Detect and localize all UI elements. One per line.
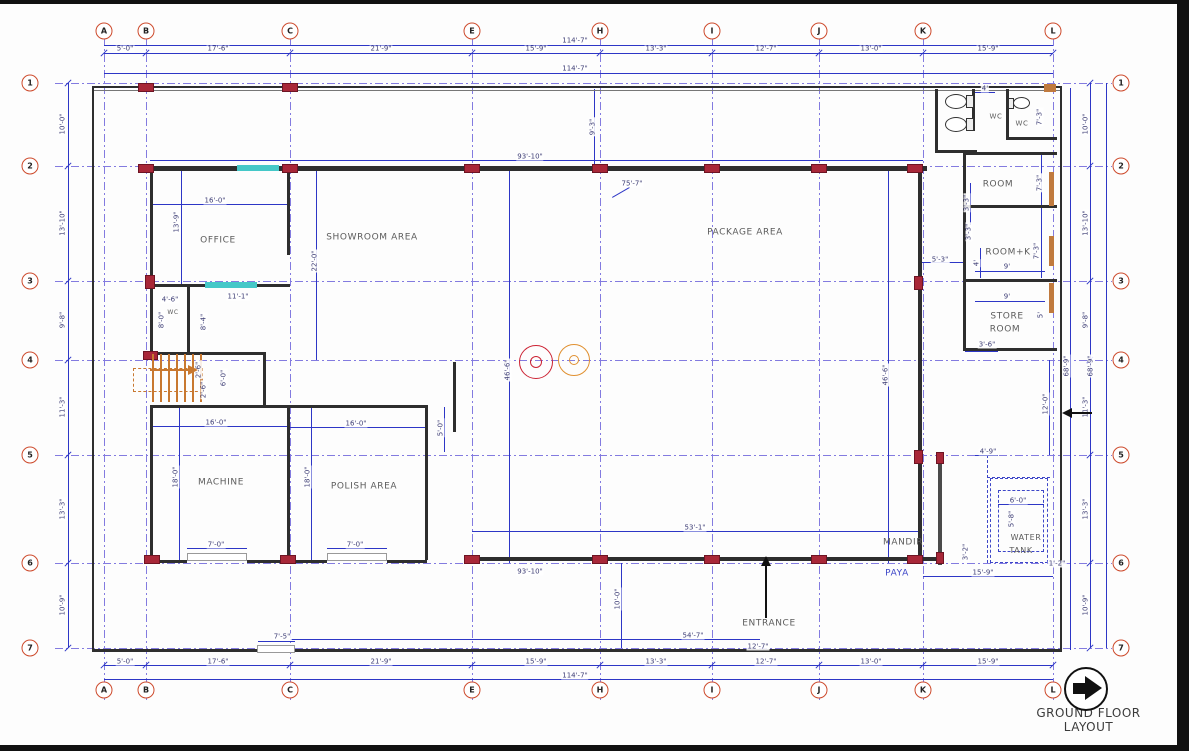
column-marker [704, 164, 720, 173]
dim-label: 7'-0" [207, 542, 226, 549]
dim-label: 10'-0" [615, 587, 622, 610]
toilet-tank-icon [966, 95, 974, 108]
dim-label: 12'-7" [746, 644, 769, 651]
door-opening [327, 553, 387, 561]
dim-label: 11'-1" [226, 294, 249, 301]
dimension-line [1106, 83, 1107, 648]
grid-bubble-3-left: 3 [22, 273, 39, 290]
col-dim-bottom: 17'-6" [206, 659, 229, 666]
dim-label: 6'-0" [221, 369, 228, 388]
west-arrow-line [1070, 412, 1092, 414]
column-marker [280, 555, 296, 564]
window-symbol [205, 282, 257, 288]
dim-label: 7'-0" [346, 542, 365, 549]
column-marker [464, 555, 480, 564]
column-marker [144, 555, 160, 564]
wall [387, 560, 427, 563]
wall [287, 171, 290, 255]
dimension-line [104, 45, 1053, 46]
row-dim-left: 9'-8" [60, 311, 67, 330]
toilet-icon [1013, 97, 1030, 109]
wall [150, 171, 153, 352]
column-marker [138, 83, 154, 92]
grid-bubble-C-top: C [282, 23, 299, 40]
machine-circle-inner [530, 356, 542, 368]
column-marker [914, 450, 923, 464]
stairs-tread [160, 354, 162, 402]
column-marker [914, 276, 923, 290]
dimension-line [181, 171, 182, 284]
column-marker [811, 164, 827, 173]
grid-bubble-4-right: 4 [1113, 352, 1130, 369]
grid-bubble-6-left: 6 [22, 555, 39, 572]
dimension-line [975, 271, 1045, 272]
column-marker [143, 351, 158, 360]
wall [150, 407, 153, 560]
column-marker [907, 555, 923, 564]
grid-bubble-2-right: 2 [1113, 158, 1130, 175]
wall [472, 557, 922, 561]
door-symbol [1049, 236, 1054, 266]
room-label-water-tank-line1: WATER [1011, 534, 1042, 542]
stairs-tread [176, 354, 178, 402]
dimension-line [1041, 208, 1042, 278]
room-label-mandir: MANDIR [883, 539, 923, 548]
dim-label: 15'-9" [971, 570, 994, 577]
door-symbol [1049, 283, 1054, 313]
dim-label: 114'-7" [561, 38, 588, 45]
dim-label: 7'-5" [273, 634, 292, 641]
stairs-tread [152, 354, 154, 402]
grid-bubble-1-left: 1 [22, 75, 39, 92]
row-dim-right: 13'-3" [1083, 497, 1090, 520]
dim-label: 18'-0" [305, 465, 312, 488]
column-marker [936, 552, 944, 564]
row-dim-right: 10'-0" [1083, 112, 1090, 135]
dim-label: 93'-10" [516, 569, 543, 576]
dim-label: 9' [1003, 264, 1011, 271]
dim-label: 68'-9" [1088, 354, 1095, 377]
room-label-office: OFFICE [200, 237, 236, 246]
col-dim-top: 17'-6" [206, 46, 229, 53]
dimension-line [104, 53, 1053, 54]
col-dim-bottom: 12'-7" [754, 659, 777, 666]
column-marker [907, 164, 923, 173]
toilet-icon [945, 94, 967, 109]
grid-bubble-A-top: A [96, 23, 113, 40]
dim-label: 9'-3" [590, 118, 597, 137]
dim-label: 3'-2" [963, 543, 970, 562]
wall [963, 152, 966, 351]
dim-label: 46'-6" [883, 363, 890, 386]
row-dim-left: 10'-9" [60, 593, 67, 616]
north-arrow-bar [1073, 683, 1087, 694]
grid-bubble-A-bottom: A [96, 682, 113, 699]
row-dim-left: 13'-10" [60, 209, 67, 236]
grid-bubble-I-top: I [704, 23, 721, 40]
grid-bubble-1-right: 1 [1113, 75, 1130, 92]
dim-label: 75'-7" [620, 181, 643, 188]
dim-label: 12'-0" [1043, 392, 1050, 415]
dim-label: 3'-6" [978, 342, 997, 349]
room-label-room: ROOM [983, 181, 1014, 190]
dim-label: 2'-6" [201, 381, 208, 400]
col-dim-top: 15'-9" [976, 46, 999, 53]
col-dim-bottom: 5'-0" [116, 659, 135, 666]
grid-bubble-6-right: 6 [1113, 555, 1130, 572]
grid-bubble-2-left: 2 [22, 158, 39, 175]
room-label-polish-area: POLISH AREA [331, 483, 397, 492]
col-dim-top: 12'-7" [754, 46, 777, 53]
dim-label: 9' [1003, 294, 1011, 301]
dim-label: 114'-7" [561, 673, 588, 680]
dim-label: 5'-8" [1009, 510, 1016, 529]
room-label-wc-right-1: WC [989, 114, 1002, 121]
entrance-arrow [761, 556, 771, 566]
column-marker [464, 164, 480, 173]
grid-line-col-H [600, 38, 601, 700]
room-label-store-room-line2: ROOM [990, 326, 1021, 335]
col-dim-top: 21'-9" [369, 46, 392, 53]
toilet-tank-icon [1008, 98, 1014, 109]
machine-circle-inner [569, 355, 579, 365]
dim-label: 22'-0" [312, 249, 319, 272]
dim-label: 16'-0" [204, 420, 227, 427]
wall [963, 205, 1057, 208]
wall [918, 171, 922, 561]
grid-bubble-7-left: 7 [22, 640, 39, 657]
wall [92, 649, 259, 652]
grid-bubble-I-bottom: I [704, 682, 721, 699]
screen-edge-top [0, 0, 1189, 4]
col-dim-bottom: 15'-9" [976, 659, 999, 666]
col-dim-bottom: 21'-9" [369, 659, 392, 666]
wall [92, 90, 1062, 91]
wall [92, 86, 1062, 88]
door-opening [257, 645, 295, 653]
wall [935, 89, 938, 153]
grid-bubble-E-top: E [464, 23, 481, 40]
column-marker [592, 555, 608, 564]
dim-label: 5' [1038, 311, 1045, 319]
grid-line-col-K [923, 38, 924, 700]
dim-label: 46'-6" [505, 358, 512, 381]
grid-bubble-L-top: L [1045, 23, 1062, 40]
room-label-water-tank-line2: TANK [1009, 547, 1032, 555]
entrance-arrow-line [765, 564, 767, 618]
column-marker [145, 275, 155, 289]
door-symbol [1049, 172, 1054, 206]
grid-line-row-6 [55, 563, 1112, 564]
room-label-showroom-area: SHOWROOM AREA [326, 234, 418, 243]
grid-bubble-E-bottom: E [464, 682, 481, 699]
dim-label: 3'-3" [966, 223, 973, 242]
grid-bubble-L-bottom: L [1045, 682, 1062, 699]
grid-line-col-I [712, 38, 713, 700]
dim-label: 114'-7" [561, 66, 588, 73]
stairs-direction-arrow [188, 365, 198, 375]
wall [92, 86, 94, 652]
column-marker [704, 555, 720, 564]
room-label-machine: MACHINE [198, 479, 244, 488]
dimension-line [965, 351, 998, 352]
wall [963, 152, 1057, 155]
grid-bubble-C-bottom: C [282, 682, 299, 699]
dim-label: 18'-0" [173, 465, 180, 488]
floor-plan-canvas: AABBCCEEHHIIJJKKLL11223344556677114'-7"1… [0, 0, 1189, 751]
column-marker [138, 164, 154, 173]
screen-edge-bottom [0, 745, 1189, 751]
dim-label: 68'-9" [1064, 354, 1071, 377]
row-dim-left: 10'-0" [60, 112, 67, 135]
grid-bubble-4-left: 4 [22, 352, 39, 369]
wall [1006, 89, 1009, 139]
stairs-tread [184, 354, 186, 402]
col-dim-top: 15'-9" [524, 46, 547, 53]
wall [187, 287, 190, 352]
room-label-package-area: PACKAGE AREA [707, 229, 783, 238]
dim-label: 54'-7" [681, 633, 704, 640]
room-label-room-kitchen: ROOM+K [985, 249, 1030, 258]
dimension-line [987, 455, 989, 563]
wall [453, 362, 456, 432]
dim-label: 8'-0" [159, 311, 166, 330]
dim-label: 1'-2" [1048, 561, 1067, 568]
grid-bubble-B-top: B [138, 23, 155, 40]
grid-bubble-J-top: J [811, 23, 828, 40]
north-arrow-icon [1064, 667, 1108, 711]
col-dim-top: 13'-3" [644, 46, 667, 53]
grid-bubble-3-right: 3 [1113, 273, 1130, 290]
dimension-line [258, 641, 295, 642]
grid-line-col-J [819, 38, 820, 700]
dim-label: 7'-3" [1037, 174, 1044, 193]
wall [1006, 137, 1057, 140]
grid-bubble-K-top: K [915, 23, 932, 40]
grid-bubble-H-bottom: H [592, 682, 609, 699]
grid-bubble-K-bottom: K [915, 682, 932, 699]
row-dim-left: 11'-3" [60, 395, 67, 418]
dim-label: 16'-0" [344, 421, 367, 428]
toilet-tank-icon [966, 118, 974, 131]
dim-label: 53'-1" [683, 525, 706, 532]
wall [935, 150, 977, 153]
dim-label: 8'-4" [201, 313, 208, 332]
grid-line-col-C [290, 38, 291, 700]
column-marker [592, 164, 608, 173]
room-label-wc-office: WC [167, 310, 178, 316]
wall [938, 455, 942, 565]
dim-label: 4' [974, 259, 981, 267]
dim-label: 5'-3" [931, 257, 950, 264]
dim-label: 5'-0" [438, 419, 445, 438]
dim-label: 6'-0" [1009, 498, 1028, 505]
grid-bubble-7-right: 7 [1113, 640, 1130, 657]
row-dim-right: 10'-9" [1083, 593, 1090, 616]
grid-line-row-1 [55, 83, 1112, 84]
grid-line-row-5 [55, 455, 1112, 456]
door-symbol [1044, 84, 1056, 92]
door-opening [187, 553, 247, 561]
column-marker [282, 164, 298, 173]
stairs-tread [192, 354, 194, 402]
grid-bubble-5-right: 5 [1113, 447, 1130, 464]
column-marker [811, 555, 827, 564]
dimension-line [104, 73, 1053, 74]
dim-label: 4'-9" [979, 449, 998, 456]
wall [287, 407, 290, 560]
room-label-paya: PAYA [885, 570, 909, 579]
dimension-line [975, 301, 1045, 302]
grid-bubble-5-left: 5 [22, 447, 39, 464]
dim-label: 93'-10" [516, 154, 543, 161]
wall [425, 405, 428, 560]
room-label-entrance: ENTRANCE [742, 620, 795, 629]
col-dim-bottom: 15'-9" [524, 659, 547, 666]
dim-label: 13'-9" [174, 210, 181, 233]
grid-bubble-J-bottom: J [811, 682, 828, 699]
grid-line-col-E [472, 38, 473, 700]
dim-label: 3'-3" [964, 194, 971, 213]
wall [963, 279, 1057, 282]
column-marker [282, 83, 298, 92]
column-marker [936, 452, 944, 464]
dim-label: 7'-3" [1034, 242, 1041, 261]
dim-label: 16'-0" [203, 198, 226, 205]
dim-label: 4'-6" [161, 297, 180, 304]
dimension-line [612, 187, 630, 198]
row-dim-right: 13'-10" [1083, 209, 1090, 236]
north-arrow-head [1085, 676, 1102, 700]
wall [263, 352, 266, 407]
west-arrow [1062, 408, 1072, 418]
dimension-line [104, 665, 1053, 666]
row-dim-right: 11'-3" [1083, 395, 1090, 418]
col-dim-top: 5'-0" [116, 46, 135, 53]
dim-label: 4' [981, 86, 989, 93]
room-label-store-room-line1: STORE [990, 313, 1023, 322]
dim-label: 7'-3" [1037, 108, 1044, 127]
window-symbol [237, 165, 279, 171]
grid-bubble-H-top: H [592, 23, 609, 40]
row-dim-left: 13'-3" [60, 497, 67, 520]
room-label-wc-right-2: WC [1015, 121, 1028, 128]
grid-line-col-A [104, 38, 105, 700]
wall [294, 649, 1062, 652]
grid-bubble-B-bottom: B [138, 682, 155, 699]
screen-edge-right [1177, 0, 1189, 751]
stairs-tread [168, 354, 170, 402]
row-dim-right: 9'-8" [1083, 311, 1090, 330]
col-dim-bottom: 13'-0" [859, 659, 882, 666]
stairs-direction-arrow-line [150, 369, 188, 371]
col-dim-top: 13'-0" [859, 46, 882, 53]
col-dim-bottom: 13'-3" [644, 659, 667, 666]
toilet-icon [945, 117, 967, 132]
